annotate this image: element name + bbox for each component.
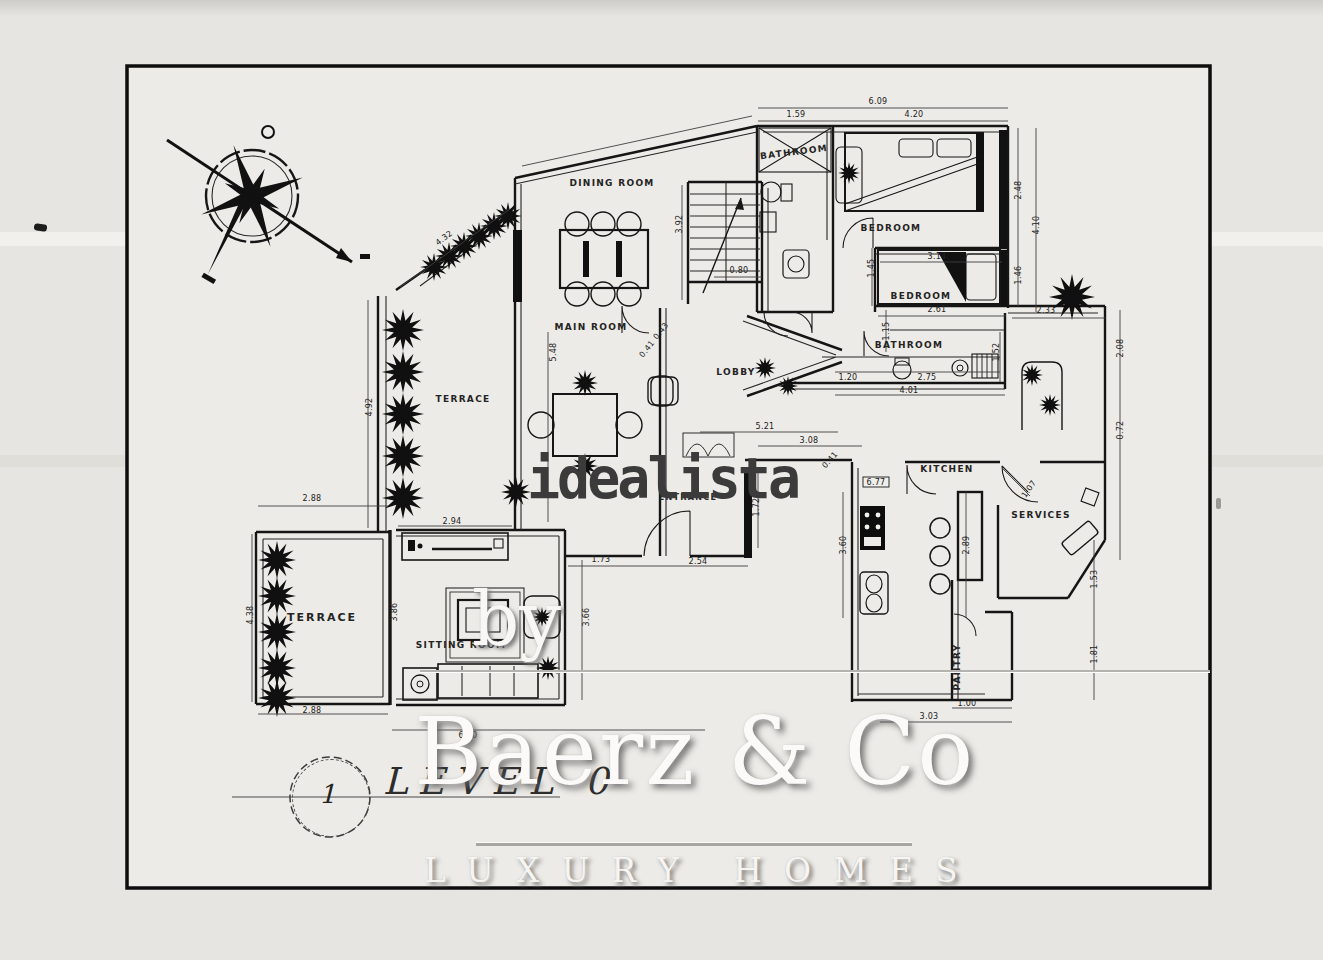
room-label-entrance: ENTRANCE: [659, 493, 717, 502]
dim-label: 6.40: [458, 731, 477, 740]
dim-label: 1.52: [992, 342, 1001, 361]
room-label-main-room: MAIN ROOM: [555, 322, 628, 332]
dim-label-boxed: 6.77: [862, 477, 889, 488]
dim-label: 2.94: [442, 517, 461, 526]
sheet-number: 1: [319, 779, 336, 809]
dim-label: 4.01: [899, 386, 918, 395]
room-label-bathroom-2: BATHROOM: [875, 340, 943, 350]
room-label-terrace-lower: TERRACE: [287, 611, 357, 624]
dim-label: 3.66: [582, 607, 591, 626]
dim-label: 2.08: [1116, 338, 1125, 357]
dim-label: 1.45: [867, 258, 876, 277]
dim-label: 3.60: [839, 535, 848, 554]
dim-label: 1.72: [752, 497, 761, 516]
dim-label: 1.53: [1090, 569, 1099, 588]
dim-label: 1.15: [882, 321, 891, 340]
drawing-border-frame: [127, 66, 1210, 888]
dim-label: 2.89: [962, 535, 971, 554]
scanned-floor-plan-page: DINING ROOM MAIN ROOM TERRACE LOBBY BATH…: [0, 0, 1323, 960]
room-label-dining-room: DINING ROOM: [569, 178, 654, 188]
dim-label: 4.10: [1032, 215, 1041, 234]
dim-label: 1.59: [786, 110, 805, 119]
dim-label: 3.08: [799, 436, 818, 445]
dim-label: 4.20: [904, 110, 923, 119]
dim-label: 1.00: [957, 699, 976, 708]
dim-label: 3.86: [390, 602, 399, 621]
dim-label: 0.80: [729, 266, 748, 275]
dim-label: 5.21: [755, 422, 774, 431]
floor-plan-drawing: [0, 0, 1323, 960]
room-label-lobby: LOBBY: [716, 367, 755, 377]
scan-speck: [1216, 498, 1221, 509]
dim-label: 1.46: [1014, 265, 1023, 284]
dim-label: 2.88: [302, 706, 321, 715]
dim-label: 0.72: [1116, 420, 1125, 439]
dim-label: 4.38: [246, 605, 255, 624]
room-label-bedroom-2: BEDROOM: [891, 291, 952, 301]
dim-label: 2.88: [302, 494, 321, 503]
dim-label: 6.09: [868, 97, 887, 106]
dim-label: 2.75: [917, 373, 936, 382]
room-label-bedroom-1: BEDROOM: [861, 223, 922, 233]
dim-label: 2.61: [927, 305, 946, 314]
dim-label: 2.48: [1014, 180, 1023, 199]
dim-label: 2.54: [688, 557, 707, 566]
dim-label: 1.73: [591, 555, 610, 564]
room-label-terrace-upper: TERRACE: [436, 394, 491, 404]
room-label-sitting-room: SITTING ROOM: [416, 640, 507, 650]
dim-label: 3.03: [919, 712, 938, 721]
room-label-pantry: PANTRY: [952, 643, 962, 690]
dim-label: 3.14: [927, 252, 946, 261]
dim-label: 2.33: [1036, 306, 1055, 315]
dim-label: 1.81: [1090, 644, 1099, 663]
dim-label: 4.92: [365, 397, 374, 416]
room-label-kitchen: KITCHEN: [920, 464, 973, 474]
room-label-services: SERVICES: [1011, 510, 1071, 520]
dim-label: 5.48: [549, 342, 558, 361]
level-title: LEVEL 0: [383, 760, 618, 803]
dim-label: 3.92: [675, 214, 684, 233]
dim-label: 1.20: [838, 373, 857, 382]
